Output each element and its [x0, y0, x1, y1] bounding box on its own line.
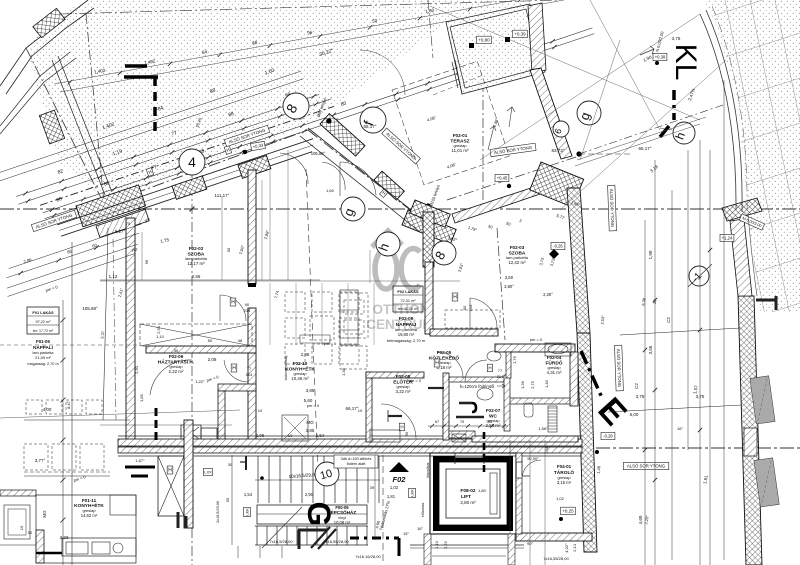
svg-text:2,23: 2,23	[60, 535, 69, 540]
svg-text:1,80: 1,80	[478, 488, 487, 493]
svg-text:1,54: 1,54	[244, 492, 253, 497]
svg-text:H: H	[231, 300, 235, 306]
svg-text:3,75: 3,75	[672, 36, 681, 41]
svg-text:4,00: 4,00	[43, 407, 52, 412]
svg-text:2,98: 2,98	[301, 352, 310, 357]
svg-text:F02-06: F02-06	[169, 354, 184, 359]
svg-text:93: 93	[488, 420, 492, 424]
svg-text:1,10: 1,10	[434, 540, 439, 549]
svg-text:ter: 17,72 m²: ter: 17,72 m²	[33, 329, 54, 333]
svg-text:1,98: 1,98	[544, 445, 549, 454]
svg-text:90,00°: 90,00°	[527, 456, 539, 461]
svg-text:F01 LAKÁS: F01 LAKÁS	[32, 310, 54, 315]
svg-text:1,76: 1,76	[512, 355, 517, 364]
svg-text:2,56: 2,56	[192, 274, 201, 279]
svg-text:MG: MG	[42, 510, 47, 518]
svg-text:3,15 m²: 3,15 m²	[557, 480, 572, 485]
svg-text:LXX: LXX	[204, 469, 212, 474]
svg-text:3,56: 3,56	[648, 345, 653, 354]
svg-text:3,85: 3,85	[306, 428, 315, 433]
svg-text:bútorozhatóság: bútorozhatóság	[284, 356, 288, 381]
svg-text:H: H	[453, 295, 457, 301]
svg-text:4,02°: 4,02°	[564, 543, 569, 553]
svg-text:2,80 m²: 2,80 m²	[460, 500, 476, 505]
svg-text:3,75: 3,75	[636, 394, 645, 399]
svg-text:C2: C2	[634, 383, 639, 389]
svg-text:F02-10: F02-10	[293, 361, 308, 366]
svg-text:F02-01: F02-01	[453, 133, 468, 138]
svg-text:3,85: 3,85	[306, 388, 315, 393]
svg-text:MÓ: MÓ	[306, 419, 314, 425]
svg-text:H: H	[435, 361, 439, 367]
svg-text:előszoba: előszoba	[421, 503, 425, 517]
svg-text:10: 10	[358, 408, 363, 413]
svg-text:F02-03: F02-03	[510, 245, 525, 250]
svg-text:H: H	[232, 366, 236, 372]
svg-text:1,22°: 1,22°	[195, 379, 205, 384]
svg-text:105,68°: 105,68°	[311, 151, 326, 156]
svg-text:-0,28: -0,28	[603, 433, 613, 438]
svg-text:1,02: 1,02	[390, 485, 399, 490]
svg-text:+0,38: +0,38	[655, 54, 666, 59]
svg-text:2,20°: 2,20°	[543, 292, 553, 297]
svg-text:+1,24: +1,24	[722, 235, 733, 240]
svg-text:3,77°: 3,77°	[35, 458, 46, 463]
svg-text:50: 50	[225, 497, 230, 502]
svg-text:39: 39	[370, 485, 375, 490]
svg-text:pm = 0: pm = 0	[409, 378, 422, 383]
svg-text:F02-05: F02-05	[437, 350, 452, 355]
svg-text:2,30: 2,30	[156, 325, 161, 334]
svg-text:magasság: 2,70 m: magasság: 2,70 m	[27, 362, 58, 366]
svg-text:ter: 11,10 m²: ter: 11,10 m²	[398, 307, 419, 311]
svg-text:1,40: 1,40	[544, 379, 549, 388]
svg-text:pm = 0: pm = 0	[530, 337, 543, 342]
svg-text:50: 50	[208, 338, 213, 343]
svg-text:7x16,16/28,00: 7x16,16/28,00	[355, 554, 381, 559]
svg-text:3,80°: 3,80°	[504, 284, 514, 289]
svg-text:1,81: 1,81	[387, 494, 396, 499]
svg-text:1,90: 1,90	[648, 250, 653, 259]
svg-text:75: 75	[460, 420, 464, 424]
svg-text:30: 30	[174, 348, 179, 353]
svg-text:66,17°: 66,17°	[638, 146, 651, 151]
svg-text:15°: 15°	[403, 531, 409, 536]
svg-text:belmagasság: 2,70 m: belmagasság: 2,70 m	[387, 338, 426, 343]
svg-text:2,30: 2,30	[134, 365, 139, 374]
svg-text:+0,45: +0,45	[497, 175, 508, 180]
svg-text:F02-07: F02-07	[486, 408, 501, 413]
svg-text:16°: 16°	[417, 526, 423, 531]
svg-text:50: 50	[28, 530, 33, 535]
svg-text:97,22 m²: 97,22 m²	[36, 320, 52, 324]
svg-text:+0,80: +0,80	[478, 38, 490, 43]
svg-text:214: 214	[244, 308, 251, 313]
svg-text:66,17°: 66,17°	[363, 124, 376, 129]
svg-text:LKK: LKK	[244, 508, 249, 516]
svg-text:19,80 m²: 19,80 m²	[398, 332, 415, 337]
svg-text:1,38: 1,38	[341, 367, 346, 376]
svg-text:2,53°: 2,53°	[600, 315, 606, 325]
svg-text:66,17°: 66,17°	[345, 406, 358, 411]
svg-text:21,09 m²: 21,09 m²	[35, 355, 51, 360]
svg-text:1,48: 1,48	[596, 465, 602, 474]
svg-text:1,67°: 1,67°	[135, 458, 145, 463]
svg-text:214: 214	[497, 374, 504, 379]
svg-text:214: 214	[246, 372, 253, 377]
svg-text:3,60: 3,60	[505, 275, 514, 280]
svg-text:72,31 m²: 72,31 m²	[401, 299, 417, 303]
svg-text:2,75: 2,75	[530, 380, 535, 389]
svg-text:LKK: LKK	[409, 489, 414, 497]
svg-text:10,46 m²: 10,46 m²	[291, 376, 309, 381]
svg-text:6,00: 6,00	[630, 412, 639, 417]
svg-text:4,31 m²: 4,31 m²	[547, 370, 562, 375]
svg-text:12,17 m²: 12,17 m²	[187, 261, 205, 266]
svg-text:F08-02: F08-02	[460, 488, 476, 494]
svg-text:75: 75	[126, 221, 131, 226]
svg-text:h=120cm födémtől: h=120cm födémtől	[460, 384, 495, 389]
svg-text:90°: 90°	[527, 541, 533, 546]
svg-text:10: 10	[288, 433, 293, 438]
svg-text:12,42 m²: 12,42 m²	[508, 260, 526, 265]
svg-text:3db d=150 áttörés: 3db d=150 áttörés	[341, 457, 372, 461]
svg-text:1,56°: 1,56°	[538, 426, 548, 431]
svg-text:F04-01: F04-01	[557, 464, 572, 469]
svg-text:F02: F02	[393, 475, 407, 484]
svg-text:1,54: 1,54	[316, 433, 325, 438]
svg-text:3,75: 3,75	[696, 394, 705, 399]
svg-text:pm = 0: pm = 0	[324, 341, 337, 346]
svg-text:4: 4	[188, 154, 196, 170]
svg-text:2,90: 2,90	[305, 492, 314, 497]
svg-text:2,14: 2,14	[572, 543, 577, 552]
svg-text:F02-09: F02-09	[399, 316, 414, 321]
svg-text:10: 10	[19, 525, 24, 530]
svg-text:KL: KL	[669, 44, 702, 81]
svg-text:90: 90	[405, 432, 409, 436]
svg-text:1,39: 1,39	[520, 380, 525, 389]
svg-text:48: 48	[238, 338, 243, 343]
svg-text:ALSÓ SOR YTONG: ALSÓ SOR YTONG	[627, 464, 666, 469]
svg-text:+0,39: +0,39	[514, 32, 526, 37]
svg-text:F02-02: F02-02	[189, 246, 204, 251]
svg-text:pm = 0: pm = 0	[307, 403, 320, 408]
svg-text:F01-05: F01-05	[36, 339, 50, 344]
svg-text:16°: 16°	[677, 426, 683, 431]
svg-text:2,22: 2,22	[443, 540, 448, 549]
svg-text:4,60: 4,60	[638, 515, 643, 524]
svg-text:1,08: 1,08	[256, 433, 265, 438]
svg-text:14,62 m²: 14,62 m²	[81, 513, 98, 518]
svg-text:7x16,55/28,00: 7x16,55/28,00	[543, 556, 569, 561]
svg-text:+0,25: +0,25	[562, 509, 574, 514]
svg-text:1,12: 1,12	[109, 274, 118, 279]
svg-text:2x16,5/29,00: 2x16,5/29,00	[216, 501, 220, 523]
svg-text:-0,26: -0,26	[553, 243, 563, 248]
svg-text:H: H	[168, 468, 172, 474]
svg-text:2,22 m²: 2,22 m²	[169, 369, 184, 374]
svg-text:1,60: 1,60	[326, 188, 335, 193]
svg-text:11,01 m²: 11,01 m²	[451, 148, 469, 153]
svg-text:G: G	[301, 502, 337, 527]
svg-text:8,47: 8,47	[66, 400, 71, 409]
svg-text:3,22 m²: 3,22 m²	[396, 389, 411, 394]
svg-text:F02 LAKÁS: F02 LAKÁS	[397, 289, 419, 294]
svg-text:90: 90	[462, 305, 467, 310]
svg-text:lépcsőkar: lépcsőkar	[426, 462, 430, 478]
svg-text:C2: C2	[666, 317, 671, 323]
svg-text:105,68°: 105,68°	[82, 306, 98, 311]
svg-text:7x16,5/28,00: 7x16,5/28,00	[269, 539, 293, 544]
svg-text:83,73°: 83,73°	[551, 148, 564, 153]
svg-text:10: 10	[258, 408, 263, 413]
svg-text:1,02: 1,02	[556, 496, 565, 501]
svg-text:2,08: 2,08	[208, 357, 217, 362]
svg-text:7x16,55/28,00: 7x16,55/28,00	[323, 539, 349, 544]
svg-text:77: 77	[498, 368, 503, 373]
svg-text:77: 77	[247, 366, 252, 371]
svg-text:67: 67	[435, 420, 439, 424]
svg-text:H: H	[488, 366, 491, 371]
svg-text:H: H	[400, 425, 403, 430]
svg-text:90: 90	[226, 247, 231, 252]
svg-text:90: 90	[245, 302, 250, 307]
svg-text:födém alatt: födém alatt	[347, 462, 367, 466]
svg-text:96: 96	[144, 259, 149, 264]
svg-text:NAPPALI: NAPPALI	[33, 345, 53, 350]
svg-text:F01-11: F01-11	[82, 498, 97, 503]
svg-text:5,60: 5,60	[304, 398, 313, 403]
svg-text:1,85: 1,85	[139, 393, 144, 402]
